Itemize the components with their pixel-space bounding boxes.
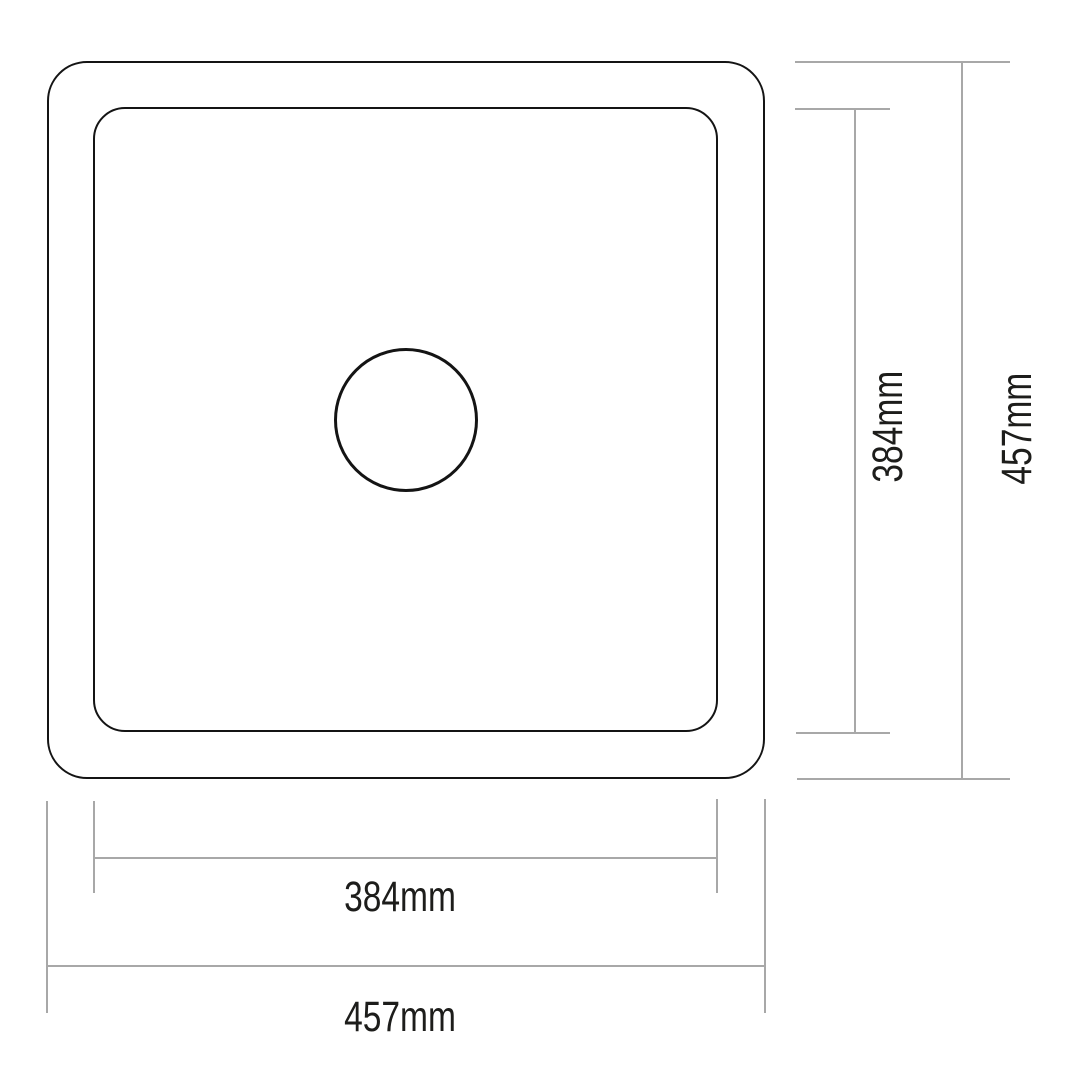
dim-label-inner-height: 384mm (866, 373, 910, 482)
dim-tick-outer-height-bottom (797, 778, 1010, 780)
dim-tick-inner-width-right (716, 799, 718, 893)
dim-tick-outer-width-right (764, 799, 766, 1013)
dim-line-inner-width (93, 857, 718, 859)
dim-label-outer-width: 457mm (322, 995, 478, 1039)
dim-tick-outer-width-left (46, 801, 48, 1013)
dim-tick-inner-width-left (93, 801, 95, 893)
dim-line-inner-height (854, 108, 856, 734)
dim-label-inner-width: 384mm (322, 875, 478, 919)
dim-tick-outer-height-top (795, 61, 1010, 63)
dim-line-outer-width (46, 965, 766, 967)
dim-tick-inner-height-bottom (796, 732, 890, 734)
drawing-canvas: 384mm 457mm 384mm 457mm (0, 0, 1080, 1080)
drain-circle (334, 348, 478, 492)
dim-line-outer-height (961, 61, 963, 780)
dim-label-outer-height: 457mm (995, 375, 1039, 484)
dim-tick-inner-height-top (795, 108, 890, 110)
